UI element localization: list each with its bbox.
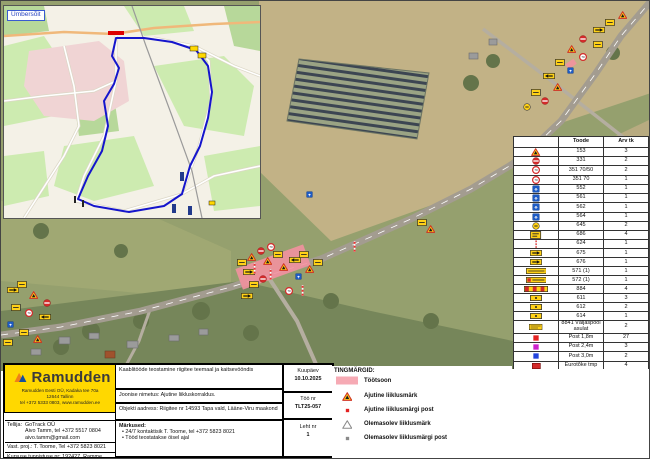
blue-icon	[532, 196, 540, 202]
sign-table-header-qty: Arv tk	[604, 137, 649, 148]
yc-icon	[532, 223, 540, 229]
symbol-label: Töötsoon	[364, 378, 391, 384]
sign-table-row: 70351 701	[514, 175, 649, 184]
date-value: 10.10.2025	[284, 376, 332, 382]
sign-table-row: 6113	[514, 294, 649, 303]
brand-text: Ramudden	[32, 369, 111, 386]
certificate-line: Kursuse tunnistuse nr: 192427, Ramme	[5, 452, 115, 459]
sign-qty: 1	[604, 276, 649, 285]
sign-qty: 2	[604, 321, 649, 334]
sign-qty: 2	[604, 221, 649, 230]
sign-code: 645	[559, 221, 604, 230]
sheet-number-cell: Leht nr 1	[283, 419, 333, 457]
blue-icon	[532, 214, 540, 220]
sheet-number-value: 1	[284, 432, 332, 438]
project-lead-line: Vast. proj.: T. Toome, Tel +372 5823 802…	[5, 442, 115, 451]
sign-code: 153	[559, 148, 604, 157]
svg-text:70: 70	[534, 169, 538, 173]
sy-icon	[530, 304, 542, 310]
job-number-value: TLT25-057	[284, 404, 332, 410]
sign-code: 351 70	[559, 175, 604, 184]
symbol-label: Olemasolev liiklusmärk	[364, 421, 431, 427]
sign-table-row: 5521	[514, 184, 649, 193]
sign-code: 675	[559, 249, 604, 258]
sign-code: 611	[559, 294, 604, 303]
ramudden-logo-cell: Ramudden Ramudden Eesti OÜ, Kadaka tee 7…	[4, 364, 116, 413]
sign-qty: 27	[604, 333, 649, 342]
sign-table-row: 1533	[514, 148, 649, 157]
work-description: Kaablitööde teostamine riigitee teemaal …	[115, 364, 283, 389]
symbol-legend-items: TöötsoonAjutine liiklusmärkAjutine liikl…	[332, 376, 512, 441]
sign-table-row: 70351 70/502	[514, 166, 649, 175]
sign-code: 686	[559, 230, 604, 239]
sign-table-row: 6864	[514, 230, 649, 239]
client-label: Tellija:	[7, 422, 22, 441]
sign-table: Toode Arv tk 1533331270351 70/50270351 7…	[513, 136, 649, 371]
sign-code: Post 3,0m	[559, 352, 604, 361]
symbol-legend-item: Olemasolev liiklusmärgi post	[336, 435, 512, 441]
sign-table-header-icon	[514, 137, 559, 148]
dot-red-icon	[336, 408, 358, 413]
plate2-icon	[526, 277, 547, 283]
sign-table-row: Post 2,4m3	[514, 343, 649, 352]
symbol-label: Olemasolev liiklusmärgi post	[364, 435, 447, 441]
sy-icon	[530, 313, 542, 319]
speed-icon: 70	[532, 177, 540, 183]
symbol-legend-title: TINGMÄRGID:	[334, 368, 512, 374]
sign-code: 676	[559, 258, 604, 267]
sign-table-row: 6452	[514, 221, 649, 230]
sign-table-row: 6751	[514, 249, 649, 258]
sign-code: 8841 Väljaspool asulat	[559, 321, 604, 334]
sign-qty: 3	[604, 294, 649, 303]
dot-magenta-icon	[532, 345, 540, 351]
yr686-icon	[530, 232, 541, 238]
sign-code: Post 1,8m	[559, 333, 604, 342]
sign-qty: 4	[604, 230, 649, 239]
sign-table-row: 6122	[514, 303, 649, 312]
inset-title: Ümbersõit	[7, 10, 45, 21]
sign-qty: 3	[604, 343, 649, 352]
sign-qty: 2	[604, 352, 649, 361]
job-number-cell: Töö nr TLT25-057	[283, 392, 333, 419]
sign-qty: 3	[604, 148, 649, 157]
svg-text:70: 70	[534, 178, 538, 182]
sign-qty: 1	[604, 175, 649, 184]
sign-code: 564	[559, 212, 604, 221]
company-line: tel +372 5333 0803, www.ramudden.ee	[5, 400, 115, 406]
sign-table-body: 1533331270351 70/50270351 70155215611562…	[514, 148, 649, 371]
blue-icon	[532, 186, 540, 192]
sy-icon	[530, 295, 542, 301]
zone-icon	[336, 376, 358, 385]
sign-code: 571 (1)	[559, 267, 604, 276]
sign-table-row: 6241	[514, 240, 649, 249]
title-block: Ramudden Ramudden Eesti OÜ, Kadaka tee 7…	[3, 363, 334, 458]
client-line: aivo.tamm@gmail.com	[25, 435, 101, 441]
sign-code: 624	[559, 240, 604, 249]
sign-code: 572 (1)	[559, 276, 604, 285]
sign-table-row: 5611	[514, 194, 649, 203]
bigplate-icon	[529, 324, 542, 330]
sign-qty: 1	[604, 249, 649, 258]
sign-table-row: 8841 Väljaspool asulat2	[514, 321, 649, 334]
inset-map: Ümbersõit	[3, 5, 261, 219]
sign-qty: 1	[604, 184, 649, 193]
sign-code: 552	[559, 184, 604, 193]
sign-table-row: 571 (1)1	[514, 267, 649, 276]
sign-qty: 1	[604, 240, 649, 249]
arrR-icon	[530, 250, 542, 256]
sign-table-row: 5621	[514, 203, 649, 212]
sign-code: 331	[559, 157, 604, 166]
tri-icon	[531, 149, 540, 155]
sign-table-row: 3312	[514, 157, 649, 166]
noentry-icon	[532, 159, 540, 165]
sign-qty: 1	[604, 194, 649, 203]
inset-map-art	[4, 6, 260, 218]
sheet-number-label: Leht nr	[284, 424, 332, 430]
symbol-legend-item: Ajutine liiklusmärk	[336, 392, 512, 401]
sign-qty: 1	[604, 312, 649, 321]
note-item: Tööd teostatakse öisel ajal	[122, 435, 279, 441]
sign-table-header-code: Toode	[559, 137, 604, 148]
sign-code: 351 70/50	[559, 166, 604, 175]
sign-code: 884	[559, 285, 604, 294]
notes-cell: Märkused: 24/7 kontaktisik T. Toome, tel…	[115, 420, 283, 457]
sign-code: 562	[559, 203, 604, 212]
ramudden-logo: Ramudden	[5, 370, 115, 385]
sign-table-row: 572 (1)1	[514, 276, 649, 285]
symbol-label: Ajutine liiklusmärk	[364, 393, 417, 399]
object-address: Objekti aadress: Riigitee nr 14593 Tapa …	[115, 403, 283, 420]
date-label: Kuupäev	[284, 368, 332, 374]
sign-qty: 1	[604, 203, 649, 212]
sign-table-row: Post 3,0m2	[514, 352, 649, 361]
post-icon	[535, 242, 537, 248]
tri-icon	[336, 392, 358, 401]
sign-qty: 2	[604, 166, 649, 175]
sign-qty: 1	[604, 258, 649, 267]
sign-qty: 4	[604, 285, 649, 294]
arrL-icon	[530, 259, 542, 265]
dot-red-icon	[532, 335, 540, 341]
symbol-legend-item: Töötsoon	[336, 376, 512, 385]
symbol-legend-item: Olemasolev liiklusmärk	[336, 420, 512, 429]
symbol-legend-item: Ajutine liiklusmärgi post	[336, 407, 512, 413]
ramudden-triangles-icon	[9, 371, 29, 382]
sign-qty: 2	[604, 303, 649, 312]
sign-code: Post 2,4m	[559, 343, 604, 352]
blank-area	[512, 369, 650, 459]
sign-qty: 2	[604, 157, 649, 166]
sign-table-row: Post 1,8m27	[514, 333, 649, 342]
sign-table-row: 5641	[514, 212, 649, 221]
date-cell: Kuupäev 10.10.2025	[283, 364, 333, 392]
sign-qty: 1	[604, 212, 649, 221]
drawing-name: Joonise nimetus: Ajutine liikluskorraldu…	[115, 389, 283, 403]
sign-code: 612	[559, 303, 604, 312]
tri-gray-icon	[336, 420, 358, 429]
plan-sheet: 70707070	[0, 0, 650, 459]
blue-icon	[532, 205, 540, 211]
dot-blue-icon	[532, 354, 540, 360]
client-line: Aivo Tamm, tel +372 5517 0804	[25, 428, 101, 434]
sign-table-row: 8844	[514, 285, 649, 294]
job-number-label: Töö nr	[284, 396, 332, 402]
plate-icon	[526, 268, 547, 274]
dot-gray-icon	[336, 436, 358, 441]
sign-code: 561	[559, 194, 604, 203]
stripes-icon	[524, 286, 548, 292]
symbol-legend: TINGMÄRGID: TöötsoonAjutine liiklusmärkA…	[332, 366, 512, 459]
symbol-label: Ajutine liiklusmärgi post	[364, 407, 434, 413]
sign-table-row: 6761	[514, 258, 649, 267]
speed-icon: 70	[532, 168, 540, 174]
sign-qty: 1	[604, 267, 649, 276]
